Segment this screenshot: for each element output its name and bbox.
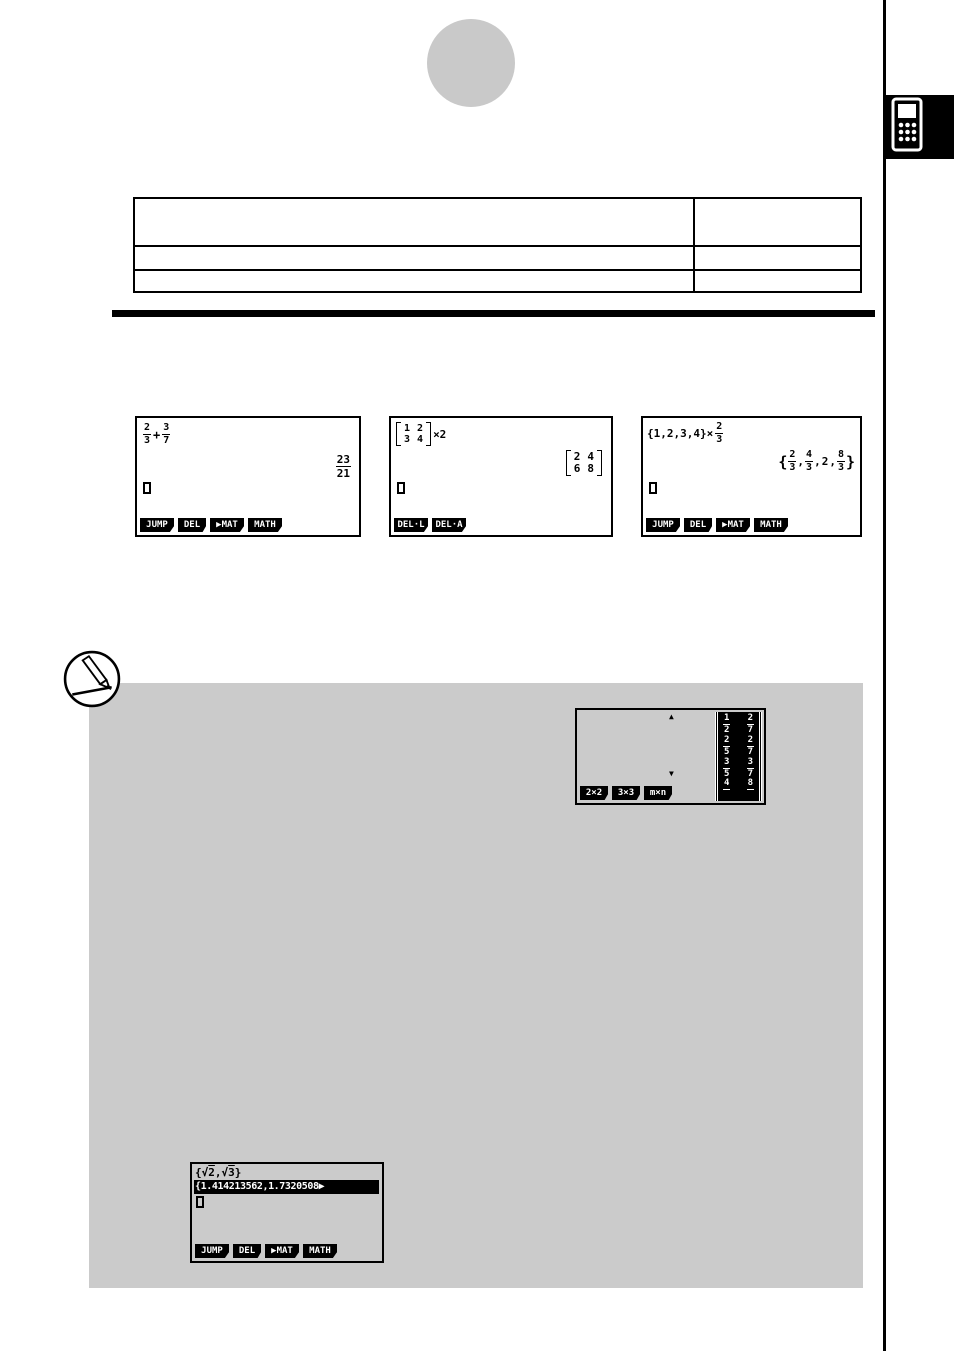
input-cursor <box>397 482 405 494</box>
function-key-row: JUMP DEL ▶MAT MATH <box>195 1244 337 1258</box>
fraction: 2 3 <box>788 450 796 473</box>
function-key-label: MATH <box>754 518 788 532</box>
function-key-label: DEL <box>178 518 206 532</box>
up-arrow-icon: ▲ <box>669 713 674 721</box>
function-key-label: JUMP <box>646 518 680 532</box>
function-key-row: DEL·L DEL·A <box>394 518 466 532</box>
page-edge-rule <box>883 0 886 1351</box>
calc-screen-list-example: {1,2,3,4}× 2 3 { 2 3 , 4 3 , 2 , 8 3 <box>641 416 862 537</box>
matrix-answer-panel: 1 2 2 7 2 5 2 7 <box>715 712 762 801</box>
function-key-label: ▶MAT <box>265 1244 299 1258</box>
matrix-bracket-right <box>426 422 431 446</box>
fraction-expression: 2 3 + 3 7 <box>143 423 170 446</box>
chapter-tab <box>884 95 954 159</box>
function-key-label: MATH <box>303 1244 337 1258</box>
fraction: 2 7 <box>747 714 754 735</box>
function-key-row: JUMP DEL ▶MAT MATH <box>646 518 788 532</box>
function-key-label: MATH <box>248 518 282 532</box>
fraction: 3 5 <box>723 758 730 779</box>
input-cursor <box>649 482 657 494</box>
fraction: 2 7 <box>747 736 754 757</box>
matrix-row: 3 5 3 7 <box>721 758 756 780</box>
list-expression-text: {1,2,3,4}× <box>647 427 713 440</box>
function-key-label: DEL <box>233 1244 261 1258</box>
list-result: { 2 3 , 4 3 , 2 , 8 3 } <box>778 450 855 473</box>
sqrt-expression: {√2,√3} <box>195 1166 241 1179</box>
function-key-label: m×n <box>644 786 672 800</box>
section-divider-rule <box>112 310 875 317</box>
matrix-row-partial: 4 8 <box>721 779 756 801</box>
chapter-number-circle <box>427 19 515 107</box>
fraction: 2 5 <box>723 736 730 757</box>
matrix-multiplier: ×2 <box>433 428 446 441</box>
highlighted-result-line: {1.414213562,1.7320508▶ <box>194 1180 379 1194</box>
note-icon <box>63 650 121 708</box>
table-row-divider <box>135 269 860 271</box>
function-key-label: JUMP <box>140 518 174 532</box>
function-key-label: DEL·L <box>394 518 428 532</box>
matrix: 1 2 3 4 <box>396 422 431 446</box>
function-key-label: ▶MAT <box>210 518 244 532</box>
fraction-result: 23 21 <box>336 454 351 479</box>
fraction: 1 2 <box>723 714 730 735</box>
fraction: 3 7 <box>162 423 170 446</box>
function-key-label: JUMP <box>195 1244 229 1258</box>
integer-value: 2 <box>822 455 829 468</box>
list-expression: {1,2,3,4}× 2 3 <box>647 422 723 445</box>
matrix-expression: 1 2 3 4 ×2 <box>396 422 446 446</box>
function-key-label: DEL·A <box>432 518 466 532</box>
fraction: 23 21 <box>336 454 351 479</box>
function-key-label: 2×2 <box>580 786 608 800</box>
pencil-icon <box>63 650 121 708</box>
function-key-label: 3×3 <box>612 786 640 800</box>
calc-screen-fraction-example: 2 3 + 3 7 23 21 JUMP DEL ▶MAT MATH <box>135 416 361 537</box>
table-row-divider <box>135 245 860 247</box>
input-cursor <box>196 1196 204 1208</box>
plus-operator: + <box>153 428 160 442</box>
function-key-row: 2×2 3×3 m×n <box>580 786 672 800</box>
matrix-bracket-right <box>597 450 602 476</box>
fraction: 4 3 <box>805 450 813 473</box>
calc-screen-matrix-dim-example: ▲ ▼ 1 2 2 7 2 5 <box>575 708 766 805</box>
fraction: 4 <box>723 779 730 790</box>
matrix-row: 1 2 2 7 <box>721 714 756 736</box>
calc-screen-matrix-example: 1 2 3 4 ×2 2 4 6 8 <box>389 416 613 537</box>
fraction: 2 3 <box>143 423 151 446</box>
fraction: 8 <box>747 779 754 790</box>
function-key-label: ▶MAT <box>716 518 750 532</box>
down-arrow-icon: ▼ <box>669 770 674 778</box>
calc-screen-sqrt-example: {√2,√3} {1.414213562,1.7320508▶ JUMP DEL… <box>190 1162 384 1263</box>
summary-table <box>133 197 862 293</box>
fraction: 8 3 <box>837 450 845 473</box>
matrix: 2 4 6 8 <box>566 450 602 476</box>
manual-page: 2 3 + 3 7 23 21 JUMP DEL ▶MAT MATH <box>0 0 954 1351</box>
matrix-row: 2 5 2 7 <box>721 736 756 758</box>
function-key-row: JUMP DEL ▶MAT MATH <box>140 518 282 532</box>
calculator-icon <box>888 96 928 158</box>
input-cursor <box>143 482 151 494</box>
table-column-divider <box>693 199 695 291</box>
fraction: 2 3 <box>715 422 723 445</box>
matrix-result: 2 4 6 8 <box>566 450 602 476</box>
function-key-label: DEL <box>684 518 712 532</box>
fraction: 3 7 <box>747 758 754 779</box>
